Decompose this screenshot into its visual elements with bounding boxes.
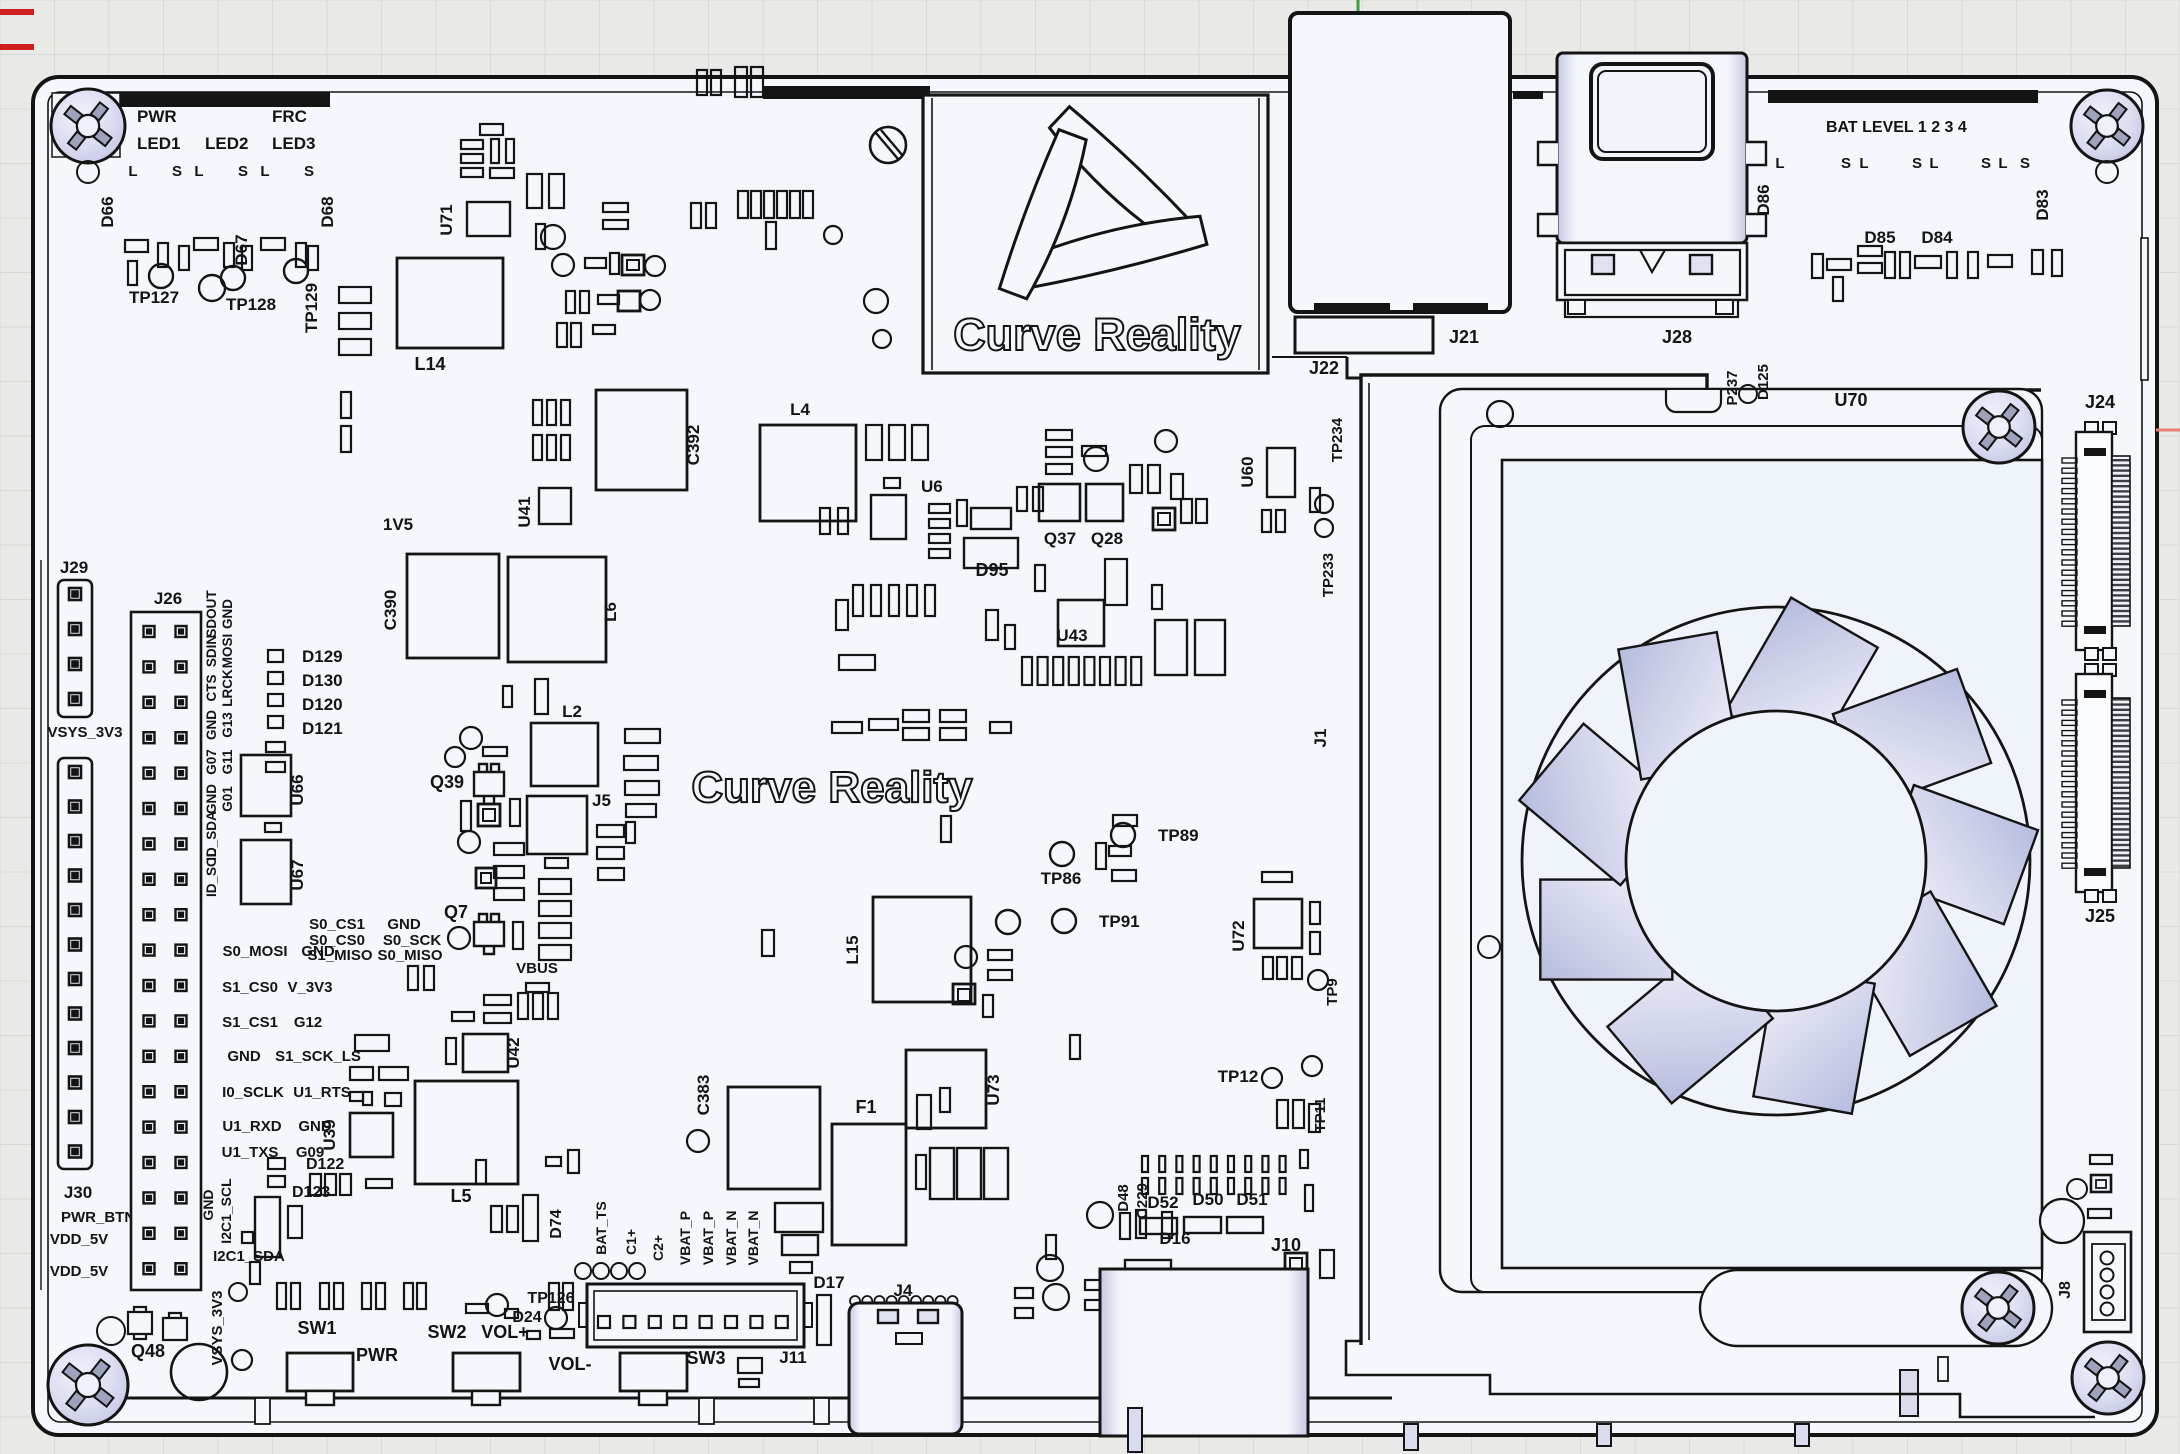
svg-text:LRCK: LRCK <box>220 669 235 707</box>
svg-text:S: S <box>1981 155 1991 172</box>
svg-text:LED2: LED2 <box>205 134 248 153</box>
svg-text:I2C1_SCL: I2C1_SCL <box>218 1178 234 1244</box>
svg-text:SDOUT: SDOUT <box>204 590 219 638</box>
svg-text:Curve Reality: Curve Reality <box>691 763 973 812</box>
svg-text:L: L <box>1929 155 1938 172</box>
svg-text:S: S <box>1912 155 1922 172</box>
svg-text:FRC: FRC <box>272 107 307 126</box>
svg-text:G11: G11 <box>220 749 235 774</box>
svg-text:G07: G07 <box>204 749 219 775</box>
svg-text:S0_MOSI: S0_MOSI <box>222 943 287 960</box>
svg-text:TP86: TP86 <box>1041 869 1082 888</box>
svg-text:D85: D85 <box>1864 228 1895 247</box>
svg-text:J25: J25 <box>2085 906 2115 926</box>
svg-text:J1: J1 <box>1311 729 1330 748</box>
svg-text:D95: D95 <box>975 560 1008 580</box>
svg-text:PWR_BTN: PWR_BTN <box>61 1209 135 1226</box>
svg-text:D122: D122 <box>306 1156 344 1173</box>
svg-text:D84: D84 <box>1921 228 1953 247</box>
svg-text:S1_CS0: S1_CS0 <box>222 979 278 996</box>
svg-text:CTS: CTS <box>204 675 219 702</box>
svg-text:SW1: SW1 <box>297 1318 336 1338</box>
svg-text:L: L <box>1998 155 2007 172</box>
svg-text:U73: U73 <box>984 1074 1003 1105</box>
svg-text:L6: L6 <box>601 602 620 622</box>
svg-text:D130: D130 <box>302 671 343 690</box>
svg-text:S: S <box>304 163 314 180</box>
svg-text:TP234: TP234 <box>1329 417 1346 462</box>
svg-text:TP91: TP91 <box>1099 912 1140 931</box>
svg-text:L2: L2 <box>562 702 582 721</box>
svg-text:VDD_5V: VDD_5V <box>50 1263 108 1280</box>
svg-text:VBAT_N: VBAT_N <box>723 1211 739 1266</box>
svg-text:D66: D66 <box>98 196 117 227</box>
svg-text:S: S <box>238 163 248 180</box>
svg-text:D68: D68 <box>318 196 337 227</box>
svg-text:D86: D86 <box>1754 184 1773 215</box>
svg-text:BAT_TS: BAT_TS <box>593 1201 609 1254</box>
svg-text:SDIN: SDIN <box>204 635 219 667</box>
svg-text:U70: U70 <box>1834 390 1867 410</box>
svg-text:GND: GND <box>387 916 421 933</box>
svg-text:L: L <box>128 163 137 180</box>
svg-text:J30: J30 <box>64 1183 92 1202</box>
svg-text:L: L <box>1775 155 1784 172</box>
svg-text:J24: J24 <box>2085 392 2115 412</box>
svg-text:P237: P237 <box>1724 370 1741 405</box>
svg-text:L4: L4 <box>790 400 810 419</box>
svg-text:Curve Reality: Curve Reality <box>953 309 1241 360</box>
svg-text:L: L <box>194 163 203 180</box>
svg-text:1V5: 1V5 <box>383 515 413 534</box>
svg-text:S1_SCK_LS: S1_SCK_LS <box>275 1048 361 1065</box>
svg-text:GND: GND <box>301 943 335 960</box>
svg-text:SW3: SW3 <box>686 1348 725 1368</box>
svg-text:S1_CS1: S1_CS1 <box>222 1014 278 1031</box>
svg-text:VSYS_3V3: VSYS_3V3 <box>47 724 122 741</box>
svg-text:F1: F1 <box>855 1097 876 1117</box>
svg-text:U71: U71 <box>437 204 456 235</box>
svg-text:C392: C392 <box>684 425 703 466</box>
svg-text:MOSI: MOSI <box>220 634 235 669</box>
svg-text:D121: D121 <box>302 719 343 738</box>
svg-text:U1_RXD: U1_RXD <box>222 1118 281 1135</box>
svg-text:TP126: TP126 <box>527 1290 574 1307</box>
svg-text:LED1: LED1 <box>137 134 180 153</box>
svg-text:L: L <box>1859 155 1868 172</box>
svg-text:C383: C383 <box>694 1075 713 1116</box>
svg-text:J22: J22 <box>1309 358 1339 378</box>
svg-text:D17: D17 <box>813 1273 844 1292</box>
svg-text:J28: J28 <box>1662 327 1692 347</box>
svg-text:TP89: TP89 <box>1158 826 1199 845</box>
svg-text:VOL-: VOL- <box>549 1354 592 1374</box>
svg-text:BAT LEVEL 1 2 3 4: BAT LEVEL 1 2 3 4 <box>1826 119 1967 136</box>
svg-text:I2C1_SDA: I2C1_SDA <box>213 1248 285 1265</box>
svg-text:U43: U43 <box>1056 626 1087 645</box>
svg-text:D52: D52 <box>1147 1193 1178 1212</box>
svg-text:TP233: TP233 <box>1320 553 1337 597</box>
svg-text:S: S <box>2020 155 2030 172</box>
svg-text:U1_RTS: U1_RTS <box>293 1084 351 1101</box>
svg-text:VSYS_3V3: VSYS_3V3 <box>209 1290 226 1365</box>
svg-text:GND: GND <box>227 1048 261 1065</box>
svg-text:D129: D129 <box>302 647 343 666</box>
svg-text:Q37: Q37 <box>1044 529 1076 548</box>
svg-text:PWR: PWR <box>137 107 177 126</box>
svg-text:U42: U42 <box>504 1037 523 1068</box>
svg-text:TP128: TP128 <box>226 295 276 314</box>
svg-text:VDD_5V: VDD_5V <box>50 1231 108 1248</box>
svg-text:VBAT_N: VBAT_N <box>745 1211 761 1266</box>
svg-text:S: S <box>1841 155 1851 172</box>
svg-text:C2+: C2+ <box>650 1235 666 1261</box>
svg-text:U6: U6 <box>921 477 943 496</box>
svg-text:D74: D74 <box>548 1209 565 1238</box>
svg-text:VBUS: VBUS <box>516 960 558 977</box>
svg-text:U60: U60 <box>1238 456 1257 487</box>
svg-text:J5: J5 <box>592 791 611 810</box>
svg-text:LED3: LED3 <box>272 134 315 153</box>
svg-text:S: S <box>172 163 182 180</box>
svg-text:J21: J21 <box>1449 327 1479 347</box>
svg-text:J26: J26 <box>154 589 182 608</box>
svg-text:D120: D120 <box>302 695 343 714</box>
svg-text:L15: L15 <box>843 935 862 964</box>
svg-text:ID_SCL: ID_SCL <box>204 849 219 897</box>
svg-text:TP12: TP12 <box>1218 1067 1259 1086</box>
svg-text:G01: G01 <box>220 786 235 812</box>
svg-text:GND: GND <box>200 1189 216 1220</box>
svg-text:D48: D48 <box>1115 1184 1132 1212</box>
svg-text:G12: G12 <box>294 1014 322 1031</box>
svg-text:C1+: C1+ <box>623 1229 639 1255</box>
svg-text:J4: J4 <box>894 1281 913 1300</box>
svg-text:TP129: TP129 <box>302 283 321 333</box>
svg-text:U66: U66 <box>288 774 307 805</box>
svg-text:J11: J11 <box>779 1348 806 1367</box>
svg-text:L: L <box>260 163 269 180</box>
svg-text:D83: D83 <box>2033 189 2052 220</box>
svg-text:Q28: Q28 <box>1091 529 1123 548</box>
svg-text:U41: U41 <box>515 496 534 527</box>
svg-text:Q39: Q39 <box>430 772 464 792</box>
svg-text:S0_MISO: S0_MISO <box>377 947 442 964</box>
svg-text:G13: G13 <box>220 712 235 738</box>
svg-text:J8: J8 <box>2057 1281 2074 1299</box>
svg-text:GND: GND <box>220 599 235 629</box>
svg-text:U67: U67 <box>288 859 307 890</box>
svg-text:VBAT_P: VBAT_P <box>677 1211 693 1265</box>
svg-text:J10: J10 <box>1271 1235 1301 1255</box>
svg-text:VBAT_P: VBAT_P <box>700 1211 716 1265</box>
svg-text:TP9: TP9 <box>1324 978 1341 1006</box>
svg-text:D50: D50 <box>1192 1190 1223 1209</box>
svg-text:PWR: PWR <box>356 1345 398 1365</box>
svg-text:J29: J29 <box>60 558 88 577</box>
svg-text:L14: L14 <box>414 354 445 374</box>
svg-text:V_3V3: V_3V3 <box>287 979 332 996</box>
svg-text:TP11: TP11 <box>1312 1097 1329 1132</box>
svg-text:GND: GND <box>204 710 219 740</box>
svg-text:SW2: SW2 <box>427 1322 466 1342</box>
svg-text:Q7: Q7 <box>444 902 468 922</box>
svg-text:L5: L5 <box>450 1186 471 1206</box>
svg-text:Q48: Q48 <box>131 1341 165 1361</box>
svg-text:S0_CS1: S0_CS1 <box>309 916 365 933</box>
svg-text:TP127: TP127 <box>129 288 179 307</box>
svg-text:C390: C390 <box>381 590 400 631</box>
svg-text:U39: U39 <box>320 1119 339 1150</box>
svg-text:U72: U72 <box>1229 920 1248 951</box>
svg-text:I0_SCLK: I0_SCLK <box>222 1084 284 1101</box>
svg-text:GND: GND <box>204 784 219 814</box>
